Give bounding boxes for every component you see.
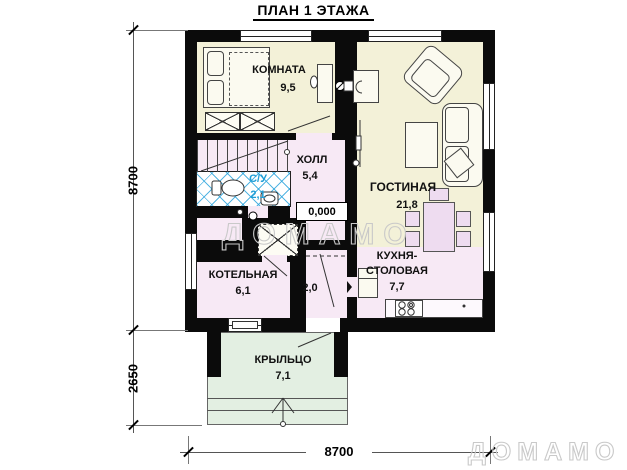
wc-door-knob xyxy=(238,210,243,215)
level-mark-box: 0,000 xyxy=(296,202,348,221)
label-boiler: КОТЕЛЬНАЯ xyxy=(198,269,288,281)
label-kitchen-2: СТОЛОВАЯ xyxy=(352,265,442,277)
dim-left-height: 8700 xyxy=(126,148,141,214)
area-wc: 2,1 xyxy=(238,189,278,201)
stairs-break-line xyxy=(201,141,288,171)
label-kitchen-1: КУХНЯ- xyxy=(357,250,437,262)
level-mark-value: 0,000 xyxy=(308,206,336,218)
porch-arrow-left xyxy=(272,398,283,413)
label-porch: КРЫЛЬЦО xyxy=(238,354,328,366)
vestibule-door-swing xyxy=(320,254,334,307)
desk-chair xyxy=(311,76,318,88)
label-bedroom: КОМНАТА xyxy=(239,64,319,76)
porch-arrow-right xyxy=(283,398,294,413)
label-living: ГОСТИНАЯ xyxy=(358,181,448,194)
floor-lamp xyxy=(353,160,359,166)
boiler-flue-circle xyxy=(249,212,257,220)
burner-3 xyxy=(399,309,405,315)
kitchen-door-mark xyxy=(347,281,352,293)
burner-1 xyxy=(399,302,405,308)
ext-line-mid xyxy=(126,330,188,331)
label-hall: ХОЛЛ xyxy=(287,154,337,166)
area-bedroom: 9,5 xyxy=(268,82,308,94)
tv-unit xyxy=(356,136,361,150)
burner-4 xyxy=(408,309,414,315)
porch-arrow-origin xyxy=(281,422,286,427)
ext-line-porch xyxy=(126,425,202,426)
burner-2 xyxy=(408,302,414,308)
toilet-tank xyxy=(212,181,221,195)
area-hall: 5,4 xyxy=(290,170,330,182)
fireplace-arc xyxy=(356,81,362,93)
area-vestibule: 2,0 xyxy=(295,282,325,294)
floor-plan: ПЛАН 1 ЭТАЖА xyxy=(0,0,627,470)
area-kitchen: 7,7 xyxy=(377,281,417,293)
dim-bottom-width: 8700 xyxy=(306,444,372,459)
ext-line-top xyxy=(126,30,188,31)
label-wc: С/У xyxy=(238,173,278,185)
fireplace-duct xyxy=(344,81,353,91)
porch-leader-line xyxy=(298,333,331,347)
bedroom-door-swing xyxy=(288,116,330,131)
area-porch: 7,1 xyxy=(263,370,303,382)
area-living: 21,8 xyxy=(383,199,431,211)
burner-2-inner xyxy=(410,304,413,307)
sink-drain-dot xyxy=(463,305,466,308)
dim-left-porch: 2650 xyxy=(126,349,141,409)
area-boiler: 6,1 xyxy=(223,285,263,297)
